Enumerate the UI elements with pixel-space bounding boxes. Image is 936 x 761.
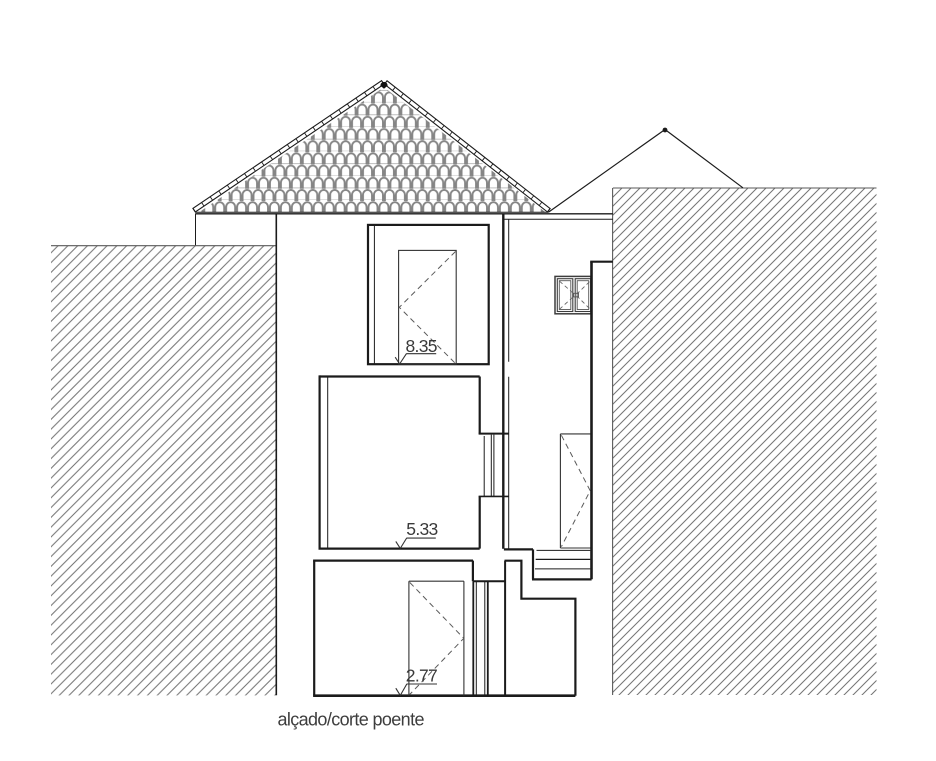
- svg-text:5.33: 5.33: [406, 519, 437, 539]
- svg-text:2.77: 2.77: [406, 666, 437, 686]
- svg-text:8.35: 8.35: [406, 336, 437, 356]
- svg-text:alçado/corte poente: alçado/corte poente: [278, 710, 425, 730]
